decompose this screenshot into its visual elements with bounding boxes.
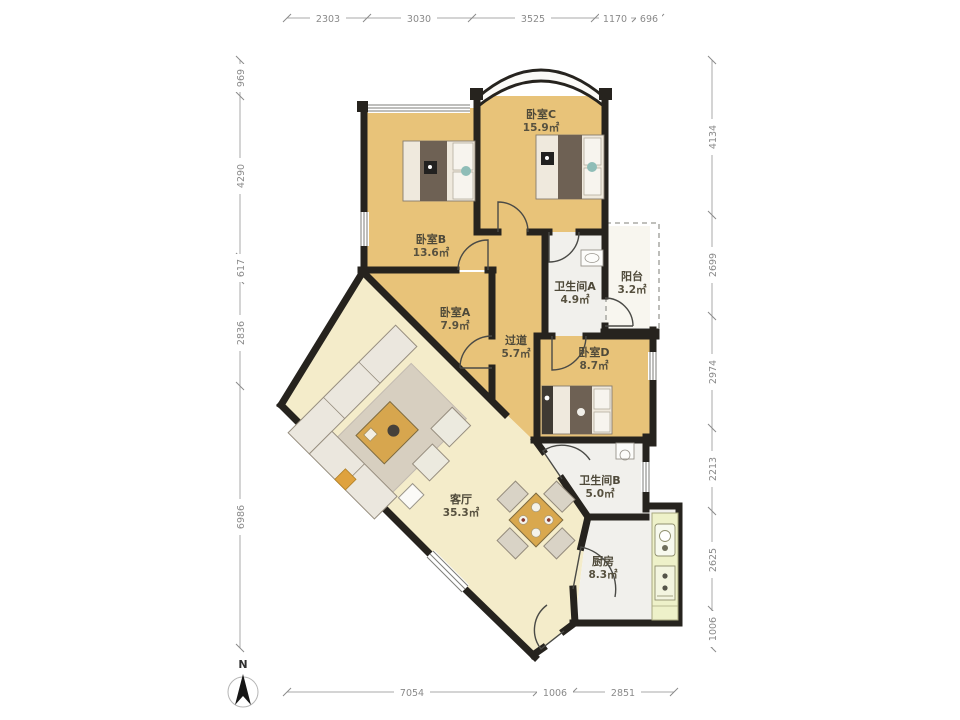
label-bedroom-c: 卧室C xyxy=(526,107,556,121)
dim-bottom-1: 1006 xyxy=(543,688,567,699)
dimension-line-top: 2303 3030 3525 1170 696 xyxy=(283,12,664,25)
dim-right-5: 1006 xyxy=(708,617,719,641)
label-bathroom-a: 卫生间A xyxy=(554,279,596,293)
dimension-line-right: 4134 2699 2974 2213 2625 1006 xyxy=(705,56,719,652)
kitchen-counter xyxy=(652,513,678,620)
area-bathroom-a: 4.9㎡ xyxy=(560,293,590,306)
dim-right-1: 2699 xyxy=(708,253,719,277)
area-kitchen: 8.3㎡ xyxy=(588,568,618,581)
dim-top-1: 3030 xyxy=(407,14,431,25)
wall-post xyxy=(599,88,612,100)
dim-left-0: 969 xyxy=(236,69,247,87)
north-label: N xyxy=(238,658,247,671)
north-arrow-icon: N xyxy=(228,658,258,707)
area-bathroom-b: 5.0㎡ xyxy=(585,487,615,500)
label-bedroom-a: 卧室A xyxy=(440,305,471,319)
dim-right-3: 2213 xyxy=(708,457,719,481)
toilet-icon xyxy=(616,443,634,460)
sink-icon xyxy=(655,524,675,556)
label-kitchen: 厨房 xyxy=(592,554,614,568)
area-balcony: 3.2㎡ xyxy=(617,283,647,296)
dim-bottom-2: 2851 xyxy=(611,688,635,699)
dim-left-3: 2836 xyxy=(236,321,247,345)
area-bedroom-b: 13.6㎡ xyxy=(413,246,450,259)
area-corridor: 5.7㎡ xyxy=(501,347,531,360)
bed-icon xyxy=(542,386,612,434)
dim-top-2: 3525 xyxy=(521,14,545,25)
dim-right-4: 2625 xyxy=(708,548,719,572)
dimension-line-bottom: 7054 1006 2851 xyxy=(283,686,678,699)
bed-icon xyxy=(536,135,604,199)
dim-left-4: 6986 xyxy=(236,505,247,529)
dim-right-2: 2974 xyxy=(708,360,719,384)
dim-top-0: 2303 xyxy=(316,14,340,25)
label-corridor: 过道 xyxy=(505,333,527,347)
dimension-line-left: 969 4290 617 2836 6986 xyxy=(233,56,247,652)
washbasin-icon xyxy=(581,250,603,266)
dim-top-4: 696 xyxy=(640,14,658,25)
wall-post xyxy=(357,101,368,112)
bed-icon xyxy=(403,141,475,201)
area-living: 35.3㎡ xyxy=(443,506,480,519)
area-bedroom-a: 7.9㎡ xyxy=(440,319,470,332)
dim-top-3: 1170 xyxy=(603,14,627,25)
stove-icon xyxy=(655,566,675,600)
label-bedroom-d: 卧室D xyxy=(578,345,609,359)
area-bedroom-c: 15.9㎡ xyxy=(523,121,560,134)
label-bathroom-b: 卫生间B xyxy=(579,473,620,487)
label-living: 客厅 xyxy=(449,492,472,506)
label-bedroom-b: 卧室B xyxy=(416,232,446,246)
floor-plan-drawing: 卧室C 15.9㎡ 卧室B 13.6㎡ 卧室A 7.9㎡ 过道 5.7㎡ 卫生间… xyxy=(0,0,960,720)
floor-plan-page: 卧室C 15.9㎡ 卧室B 13.6㎡ 卧室A 7.9㎡ 过道 5.7㎡ 卫生间… xyxy=(0,0,960,720)
dim-left-2: 617 xyxy=(236,259,247,277)
dim-right-0: 4134 xyxy=(708,125,719,149)
dim-bottom-0: 7054 xyxy=(400,688,424,699)
label-balcony: 阳台 xyxy=(621,269,643,283)
wall-post xyxy=(470,88,483,100)
dim-left-1: 4290 xyxy=(236,164,247,188)
area-bedroom-d: 8.7㎡ xyxy=(579,359,609,372)
